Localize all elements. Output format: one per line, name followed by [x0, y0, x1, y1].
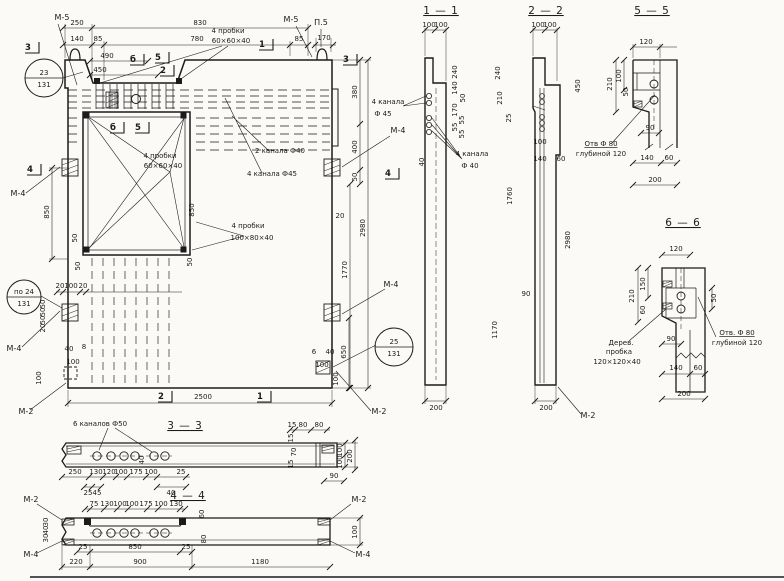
- dim-label: 50: [459, 94, 467, 103]
- note-label: 60×60×40: [212, 37, 250, 45]
- dim-label: 400: [351, 140, 359, 153]
- dim-label: 100: [125, 500, 138, 508]
- dim-label: 150: [639, 277, 647, 290]
- section-title: 6 — 6: [665, 217, 701, 229]
- mark-label: М-5: [55, 13, 70, 22]
- section-marker-number: 1: [259, 40, 265, 50]
- dim-label: 100: [615, 69, 623, 82]
- note-label: 60×60×40: [144, 162, 182, 170]
- dim-label: 250: [68, 468, 81, 476]
- dim-label: 80: [315, 421, 324, 429]
- section-1-1-view: [425, 58, 446, 385]
- dim-label: 100: [144, 468, 157, 476]
- dim-label: 120: [669, 245, 682, 253]
- dim-label: 250: [70, 19, 83, 27]
- section-4-4-view: [62, 518, 330, 545]
- detail-6-6-view: [662, 268, 705, 392]
- dim-label: 100: [315, 361, 328, 369]
- dim-label: 100: [434, 21, 447, 29]
- dim-label: 1760: [506, 187, 514, 205]
- dim-label: 80: [200, 535, 208, 544]
- dim-label: 490: [100, 52, 113, 60]
- dim-label: 170: [317, 34, 330, 42]
- dim-label: 100: [66, 358, 79, 366]
- mark-label: М-4: [7, 344, 22, 353]
- dim-label: 130: [100, 500, 113, 508]
- section-marker-number: 4: [385, 169, 391, 179]
- dim-label: 50: [39, 308, 47, 317]
- note-label: 120×120×40: [593, 358, 640, 366]
- detail-5-5-view: [633, 60, 677, 150]
- dim-label: 40: [65, 345, 74, 353]
- dim-label: 380: [351, 85, 359, 98]
- mark-label: М-4: [356, 550, 371, 559]
- dim-label: 25: [84, 489, 93, 497]
- section-title: 3 — 3: [167, 420, 203, 432]
- note-label: 4 канала Ф45: [247, 170, 297, 178]
- dim-label: 210: [496, 91, 504, 104]
- note-label: 4 пробки: [143, 152, 176, 160]
- dim-label: 30: [42, 518, 50, 527]
- dim-label: 50: [74, 262, 82, 271]
- dim-label: 210: [606, 77, 614, 90]
- dim-label: 210: [628, 289, 636, 302]
- dim-label: 100: [351, 525, 359, 538]
- dim-label: 140: [640, 154, 653, 162]
- dim-label: 450: [93, 66, 106, 74]
- dim-label: 20: [56, 282, 65, 290]
- dim-label: 25: [505, 114, 513, 123]
- section-marker-number: б: [130, 54, 136, 65]
- dim-label: 60: [557, 155, 566, 163]
- mark-label: М-4: [391, 126, 406, 135]
- mark-label: П.5: [314, 18, 328, 27]
- dim-label: 25: [182, 543, 191, 551]
- note-label: Отв Ф 80: [584, 140, 617, 148]
- dim-label: 850: [188, 203, 196, 216]
- dim-label: 20: [39, 324, 47, 333]
- dim-label: 900: [133, 558, 146, 566]
- section-marker-number: 3: [343, 55, 349, 65]
- dim-label: 55: [458, 116, 466, 125]
- dim-label: 200: [677, 390, 690, 398]
- blueprint-page: 1 — 12 — 25 — 56 — 63 — 34 — 4 М-5М-5П.5…: [0, 0, 784, 581]
- drawing-canvas: 1 — 12 — 25 — 56 — 63 — 34 — 4 М-5М-5П.5…: [0, 0, 784, 581]
- dim-label: 40: [167, 489, 176, 497]
- dim-label: 1180: [251, 558, 269, 566]
- dim-label: 8: [82, 343, 86, 351]
- dim-label: 200: [539, 404, 552, 412]
- dim-label: 85: [295, 35, 304, 43]
- section-marker-number: 1: [257, 392, 263, 402]
- note-label: 4 пробки: [231, 222, 264, 230]
- dim-label: 50: [710, 294, 718, 303]
- dim-label: 140: [451, 81, 459, 94]
- section-marker-number: 3: [25, 43, 31, 53]
- dim-label: 25: [177, 468, 186, 476]
- mark-label: М-2: [581, 411, 596, 420]
- dim-label: 780: [190, 35, 203, 43]
- ref-circle-top-text: 23: [40, 69, 49, 77]
- dim-label: 55: [458, 130, 466, 139]
- note-label: глубиной 120: [576, 150, 626, 158]
- note-label: 100×80×40: [231, 234, 274, 242]
- dim-label: 30: [42, 534, 50, 543]
- dim-label: 140: [669, 364, 682, 372]
- dim-label: 140: [70, 35, 83, 43]
- dim-label: 130: [89, 468, 102, 476]
- dim-label: 100: [543, 21, 556, 29]
- dim-label: 450: [574, 79, 582, 92]
- dim-label: 15: [287, 460, 295, 469]
- note-label: пробка: [606, 348, 632, 356]
- dim-label: 75: [90, 500, 99, 508]
- dim-label: 175: [129, 468, 142, 476]
- note-label: глубиной 120: [712, 339, 762, 347]
- dim-label: 850: [128, 543, 141, 551]
- mark-label: М-4: [11, 189, 26, 198]
- dim-label: 200: [648, 176, 661, 184]
- dim-label: 60: [665, 154, 674, 162]
- section-title: 5 — 5: [634, 5, 670, 17]
- dim-label: 100: [154, 500, 167, 508]
- note-label: 4 пробки: [211, 27, 244, 35]
- dim-label: 40: [42, 526, 50, 535]
- section-marker-number: 4: [27, 165, 33, 175]
- dim-label: 120: [639, 38, 652, 46]
- mark-label: М-2: [352, 495, 367, 504]
- dim-label: 70: [290, 448, 298, 457]
- section-marker-number: 2: [160, 66, 166, 76]
- mark-label: М-4: [24, 550, 39, 559]
- note-label: 6 каналов Ф50: [73, 420, 127, 428]
- ref-circle-top-text: 25: [390, 338, 399, 346]
- dim-label: 100: [533, 138, 546, 146]
- dim-label: 85: [94, 35, 103, 43]
- note-label: Отв. Ф 80: [719, 329, 754, 337]
- dim-label: 170: [451, 103, 459, 116]
- dim-label: 650: [340, 345, 348, 358]
- dim-label: 130: [169, 500, 182, 508]
- dim-label: 50: [351, 173, 359, 182]
- dim-label: 25: [79, 543, 88, 551]
- dim-label: 100: [114, 468, 127, 476]
- section-title: 2 — 2: [528, 5, 564, 17]
- dim-label: 200: [346, 449, 354, 462]
- main-elevation-view: [56, 49, 340, 388]
- dim-label: 50: [622, 88, 630, 97]
- dim-label: 80: [299, 421, 308, 429]
- dim-label: 100: [332, 372, 340, 385]
- dim-label: 40: [418, 158, 426, 167]
- dim-label: 6: [312, 348, 317, 356]
- dim-label: 40: [326, 348, 335, 356]
- dim-label: 20: [79, 282, 88, 290]
- dim-label: 50: [71, 234, 79, 243]
- mark-label: М-2: [19, 407, 34, 416]
- dim-label: 60: [694, 364, 703, 372]
- mark-label: М-4: [384, 280, 399, 289]
- dim-label: 90: [330, 472, 339, 480]
- dim-label: 100: [35, 371, 43, 384]
- dim-label: 90: [667, 335, 676, 343]
- dim-label: 45: [93, 489, 102, 497]
- dim-label: 15: [287, 434, 295, 443]
- dim-label: 50: [186, 258, 194, 267]
- section-2-2-view: [533, 58, 560, 385]
- section-marker-number: 2: [158, 392, 164, 402]
- mark-label: М-2: [24, 495, 39, 504]
- dim-label: 850: [43, 205, 51, 218]
- dim-label: 60: [198, 510, 206, 519]
- note-label: Ф 45: [374, 110, 391, 118]
- ref-circle-bottom-text: 131: [37, 81, 50, 89]
- dim-label: 2980: [564, 231, 572, 249]
- dim-label: 1770: [341, 261, 349, 279]
- section-marker-number: 5: [155, 53, 161, 63]
- section-title: 1 — 1: [423, 5, 459, 17]
- dim-label: 15: [288, 421, 297, 429]
- note-label: Дерев.: [609, 339, 634, 347]
- dim-label: 2980: [359, 219, 367, 237]
- dim-label: 830: [193, 19, 206, 27]
- dim-label: 240: [451, 65, 459, 78]
- notes-layer: 4 пробки60×60×404 пробки60×60×404 пробки…: [73, 27, 762, 428]
- dim-label: 175: [139, 500, 152, 508]
- dim-label: 140: [533, 155, 546, 163]
- dim-label: 50: [39, 316, 47, 325]
- note-label: Ф 40: [461, 162, 478, 170]
- dim-label: 200: [429, 404, 442, 412]
- note-label: 4 канала: [372, 98, 405, 106]
- dim-label: 220: [69, 558, 82, 566]
- dim-label: 240: [494, 66, 502, 79]
- dim-label: 20: [336, 212, 345, 220]
- dim-label: 1170: [491, 321, 499, 339]
- dim-label: 100: [336, 455, 344, 468]
- section-marker-number: б: [110, 122, 116, 133]
- mark-label: М-5: [284, 15, 299, 24]
- dim-label: 2500: [194, 393, 212, 401]
- dim-label: 60: [639, 306, 647, 315]
- embed-plates: [62, 159, 340, 379]
- ref-circle-top-text: по 24: [14, 288, 35, 296]
- section-marker-number: 5: [135, 123, 141, 133]
- dim-label: 40: [138, 456, 146, 465]
- mark-label: М-2: [372, 407, 387, 416]
- ref-circle-bottom-text: 131: [387, 350, 400, 358]
- dim-label: 100: [64, 282, 77, 290]
- dim-label: 50: [39, 300, 47, 309]
- note-label: 4 канала: [456, 150, 489, 158]
- dim-label: 100: [336, 443, 344, 456]
- ref-circle-bottom-text: 131: [17, 300, 30, 308]
- note-label: 2 канала Ф40: [255, 147, 305, 155]
- dim-label: 90: [646, 124, 655, 132]
- dim-label: 90: [522, 290, 531, 298]
